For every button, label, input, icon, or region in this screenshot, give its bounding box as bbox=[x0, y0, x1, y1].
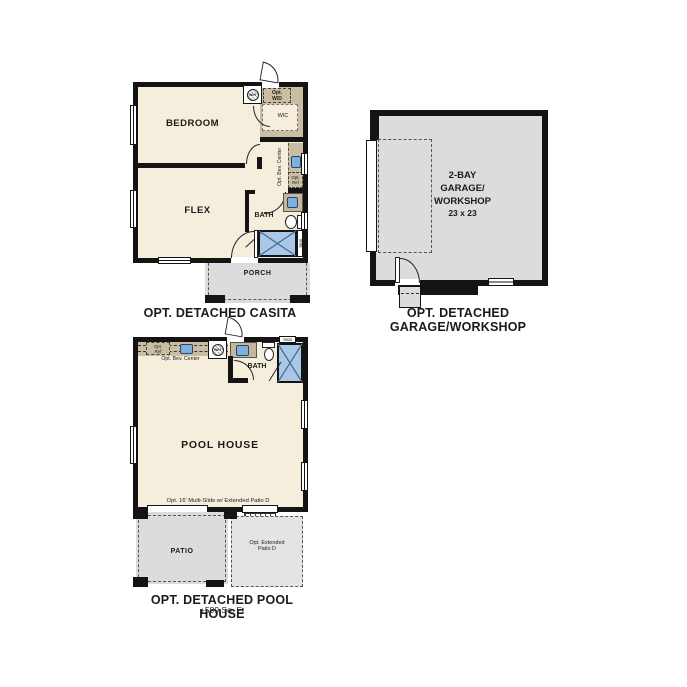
garage-stoop-dash bbox=[401, 293, 419, 294]
pool-post-4 bbox=[224, 508, 237, 519]
pool-opt-ref-box: Opt. Ref bbox=[146, 342, 170, 355]
casita-wd-label-2: W/D bbox=[272, 96, 282, 102]
pool-water-heater-icon: W/H bbox=[208, 340, 227, 359]
garage-label-line-1: 2-BAY bbox=[400, 170, 525, 183]
pool-ref-label-2: Ref bbox=[155, 349, 162, 354]
garage-door-opening bbox=[366, 140, 377, 252]
casita-front-door-leaf bbox=[254, 230, 258, 258]
casita-water-heater-icon: W/H bbox=[243, 85, 262, 104]
casita-bedroom-label: BEDROOM bbox=[150, 119, 235, 129]
pool-window-left bbox=[130, 426, 137, 464]
casita-shower-x bbox=[258, 230, 297, 257]
casita-window-bottom bbox=[158, 257, 191, 264]
casita-seat-label: Seat bbox=[298, 239, 303, 248]
casita-ref-label-2: Ref bbox=[292, 180, 299, 185]
pool-wh-label: W/H bbox=[214, 348, 221, 352]
pool-toilet-icon bbox=[264, 348, 274, 361]
pool-ext-patio-label-2: Patio D bbox=[233, 546, 301, 552]
pool-window-right-1 bbox=[301, 400, 308, 429]
pool-seat-box: Seat bbox=[279, 336, 296, 343]
casita-flex-label: FLEX bbox=[160, 206, 235, 216]
pool-bath-sink-icon bbox=[236, 345, 249, 356]
casita-window-right-1 bbox=[301, 153, 308, 175]
pool-ext-patio-label: Opt. Extended Patio D bbox=[233, 540, 301, 552]
casita-divider-wall bbox=[138, 163, 245, 168]
casita-bath-label: BATH bbox=[246, 212, 282, 219]
casita-porch-label: PORCH bbox=[215, 270, 300, 277]
pool-window-right-2 bbox=[301, 462, 308, 491]
garage-label: 2-BAY GARAGE/ WORKSHOP 23 x 23 bbox=[400, 170, 525, 220]
casita-wd-box: Opt. W/D bbox=[263, 88, 291, 103]
casita-bath-wall-left bbox=[245, 190, 249, 232]
pool-multislide-label: Opt. 16' Multi-Slide w/ Extended Patio D bbox=[138, 498, 298, 504]
floorplan-canvas: Opt. W/D WIC W/H Opt. Bev. Center Opt. R… bbox=[0, 0, 687, 687]
casita-bath-sink-icon bbox=[287, 197, 298, 208]
garage-label-line-2: GARAGE/ bbox=[400, 183, 525, 196]
garage-label-line-3: WORKSHOP bbox=[400, 196, 525, 209]
garage-stoop bbox=[399, 286, 421, 308]
casita-window-left-1 bbox=[130, 105, 137, 145]
casita-bev-center-label: Opt. Bev. Center bbox=[278, 142, 284, 192]
pool-house-sqft: +599 Sq. Ft bbox=[128, 606, 316, 615]
garage-window-bottom bbox=[488, 278, 514, 286]
casita-entry-door-icon bbox=[259, 61, 281, 83]
pool-seat-label: Seat bbox=[283, 337, 292, 342]
pool-post-2 bbox=[133, 577, 148, 587]
pool-post-1 bbox=[133, 508, 148, 519]
pool-bath-label: BATH bbox=[240, 363, 274, 370]
pool-patio-label: PATIO bbox=[146, 548, 218, 555]
casita-wh-label: W/H bbox=[249, 93, 256, 97]
casita-window-left-2 bbox=[130, 190, 137, 228]
casita-porch-post-left bbox=[205, 295, 225, 303]
pool-bev-center-label: Opt. Bev. Center bbox=[143, 357, 218, 363]
casita-wic-label: WIC bbox=[268, 114, 298, 120]
casita-caption: OPT. DETACHED CASITA bbox=[130, 306, 310, 320]
garage-caption: OPT. DETACHED GARAGE/WORKSHOP bbox=[348, 306, 568, 334]
casita-porch-post-right bbox=[290, 295, 310, 303]
casita-seat-strip: Seat bbox=[297, 230, 303, 257]
pool-house-label: POOL HOUSE bbox=[158, 440, 282, 451]
casita-bev-sink-icon bbox=[291, 156, 301, 168]
pool-bev-sink-icon bbox=[180, 344, 193, 354]
pool-post-3 bbox=[206, 580, 224, 587]
casita-window-right-2 bbox=[301, 212, 308, 230]
garage-corner-thick bbox=[370, 110, 379, 140]
garage-dimensions: 23 x 23 bbox=[400, 208, 525, 219]
casita-toilet-bowl-icon bbox=[285, 215, 297, 229]
pool-slide-opening-2 bbox=[242, 505, 278, 513]
